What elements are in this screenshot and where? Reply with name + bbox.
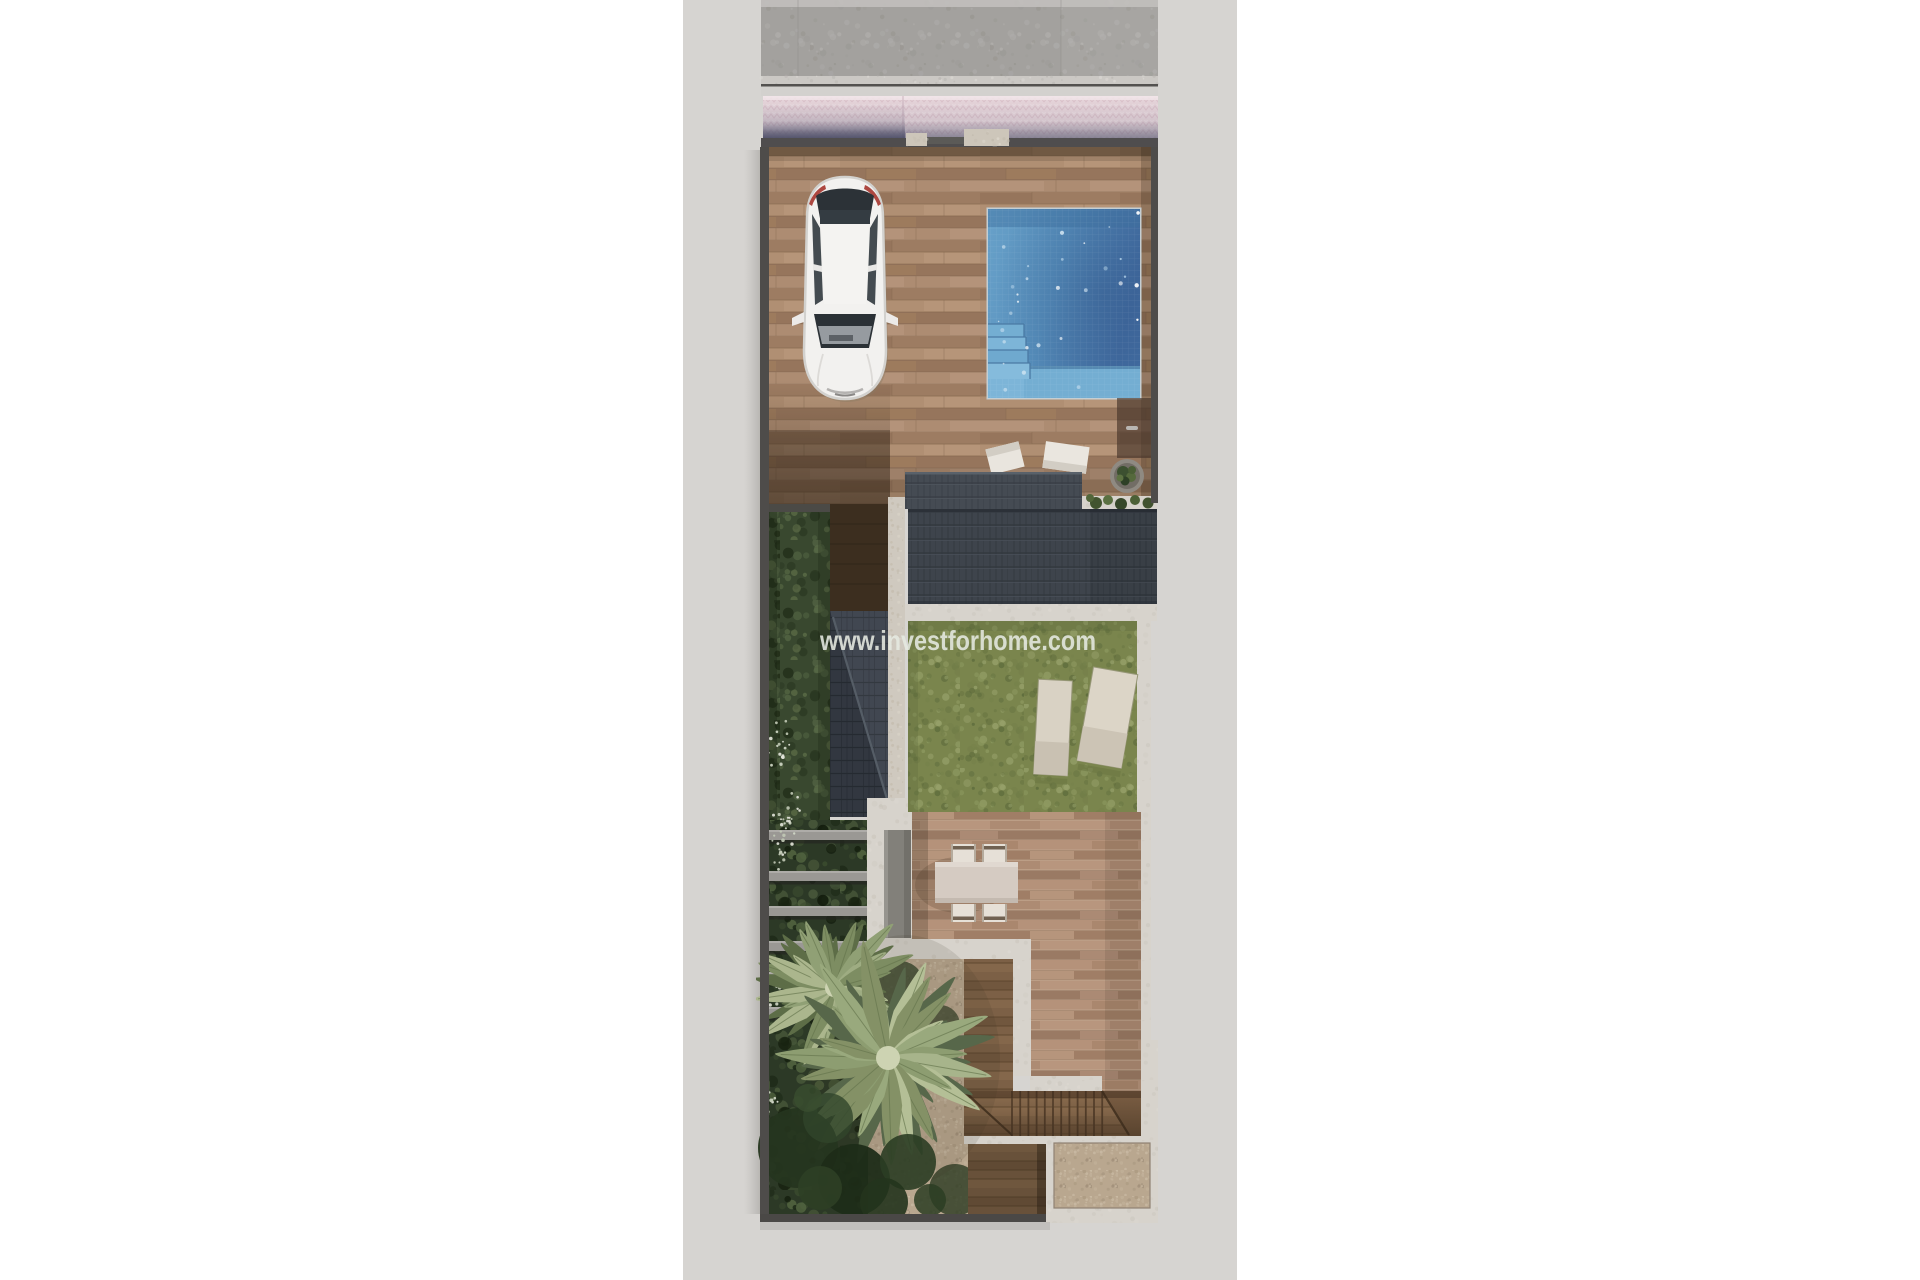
svg-text:www.investforhome.com: www.investforhome.com xyxy=(819,625,1096,656)
